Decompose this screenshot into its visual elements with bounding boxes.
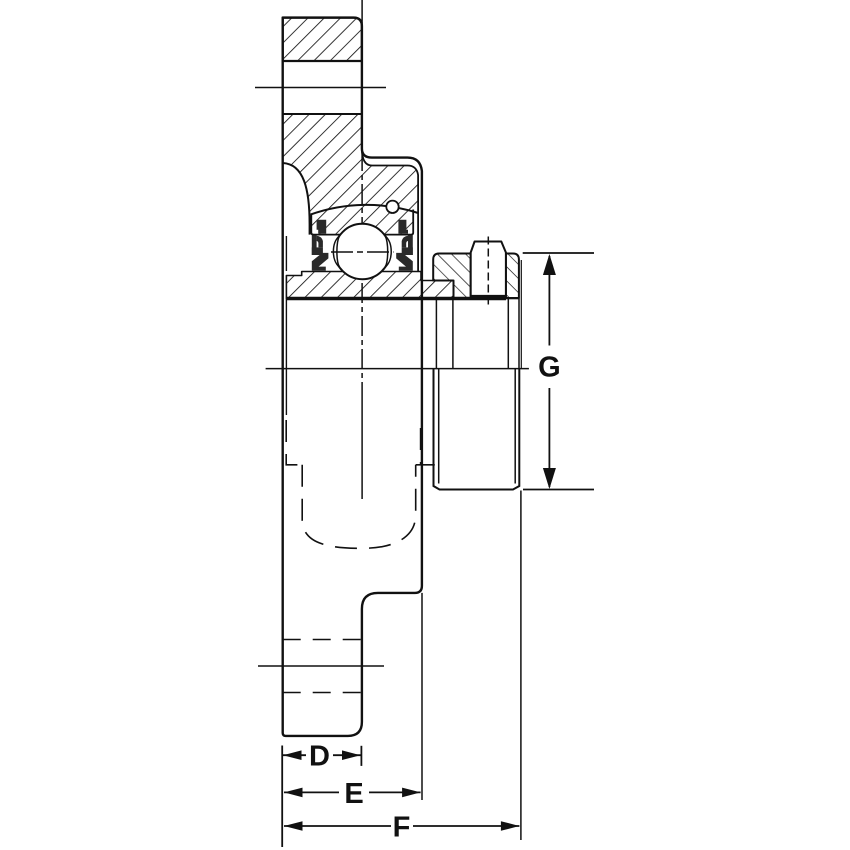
svg-text:E: E	[344, 778, 363, 810]
svg-text:F: F	[393, 811, 411, 843]
svg-text:G: G	[538, 352, 561, 384]
svg-text:D: D	[309, 741, 330, 773]
